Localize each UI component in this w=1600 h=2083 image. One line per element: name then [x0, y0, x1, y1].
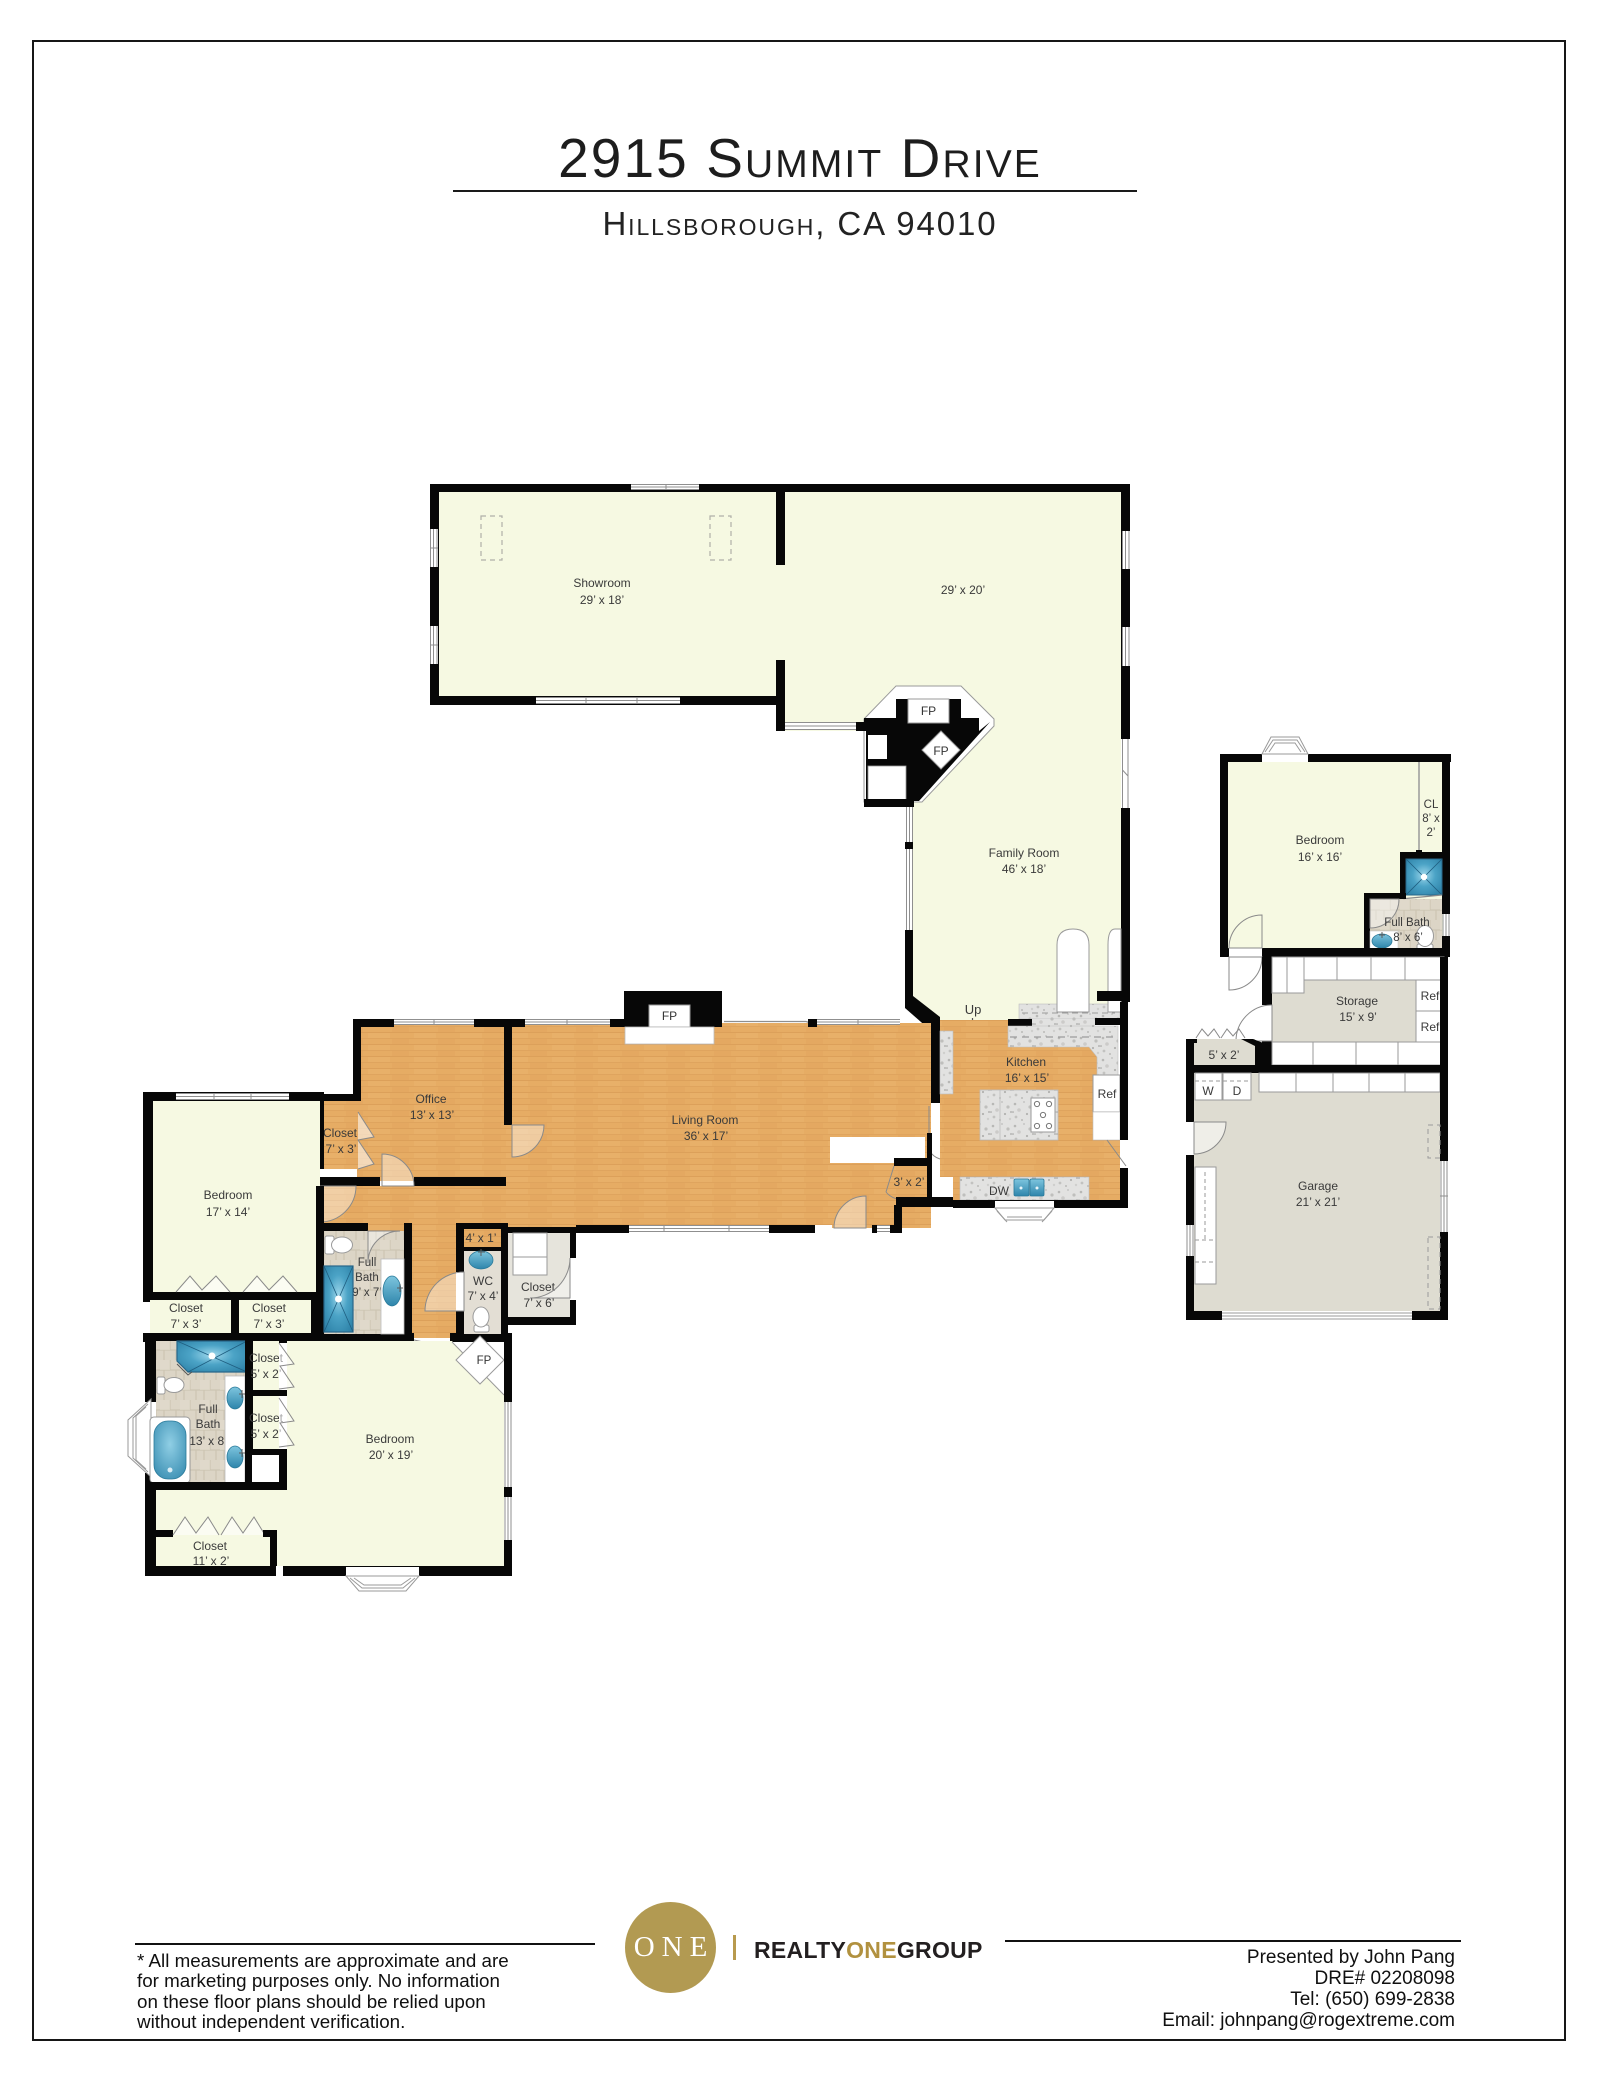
svg-text:DW: DW — [989, 1184, 1010, 1198]
svg-text:CL: CL — [1424, 799, 1439, 811]
svg-text:29’ x 18’: 29’ x 18’ — [580, 593, 624, 607]
svg-text:Full Bath: Full Bath — [1384, 917, 1429, 929]
svg-text:9’ x 7’: 9’ x 7’ — [352, 1287, 382, 1299]
svg-text:FP: FP — [933, 744, 948, 758]
svg-text:5’ x 2’: 5’ x 2’ — [251, 1367, 282, 1381]
svg-text:Bedroom: Bedroom — [366, 1432, 415, 1446]
svg-text:Full: Full — [198, 1402, 217, 1416]
svg-text:Storage: Storage — [1336, 994, 1378, 1008]
svg-text:Ref: Ref — [1421, 989, 1440, 1003]
svg-text:7’ x 3’: 7’ x 3’ — [326, 1142, 357, 1156]
svg-text:16’ x 15’: 16’ x 15’ — [1005, 1071, 1049, 1085]
svg-text:Closet: Closet — [169, 1301, 204, 1315]
svg-text:Family Room: Family Room — [989, 846, 1060, 860]
svg-text:2’: 2’ — [1427, 827, 1436, 839]
svg-text:5’ x 2’: 5’ x 2’ — [1209, 1048, 1240, 1062]
svg-text:Bath: Bath — [355, 1272, 379, 1284]
svg-text:13’ x 8’: 13’ x 8’ — [189, 1434, 227, 1448]
svg-text:15’ x 9’: 15’ x 9’ — [1339, 1010, 1377, 1024]
svg-text:Office: Office — [415, 1092, 446, 1106]
svg-text:Bath: Bath — [196, 1417, 221, 1431]
svg-text:Closet: Closet — [249, 1351, 284, 1365]
svg-text:11’ x 2’: 11’ x 2’ — [193, 1554, 230, 1568]
svg-text:16’ x 16’: 16’ x 16’ — [1298, 850, 1342, 864]
svg-text:4’ x 1’: 4’ x 1’ — [466, 1231, 497, 1245]
svg-text:21’ x 21’: 21’ x 21’ — [1296, 1195, 1340, 1209]
svg-text:Full: Full — [358, 1257, 377, 1269]
svg-text:3’ x 2’: 3’ x 2’ — [894, 1175, 925, 1189]
svg-text:Bedroom: Bedroom — [1296, 833, 1345, 847]
svg-text:46’ x 18’: 46’ x 18’ — [1002, 862, 1046, 876]
svg-text:Ref: Ref — [1421, 1020, 1440, 1034]
svg-text:20’ x 19’: 20’ x 19’ — [369, 1448, 413, 1462]
svg-text:13’ x 13’: 13’ x 13’ — [410, 1108, 454, 1122]
svg-text:7’ x 3’: 7’ x 3’ — [171, 1317, 202, 1331]
svg-text:Showroom: Showroom — [573, 576, 630, 590]
svg-text:WC: WC — [473, 1274, 493, 1288]
svg-text:Kitchen: Kitchen — [1006, 1055, 1046, 1069]
svg-text:8’ x 6’: 8’ x 6’ — [1393, 932, 1423, 944]
svg-text:17’ x 14’: 17’ x 14’ — [206, 1205, 250, 1219]
svg-text:7’ x 3’: 7’ x 3’ — [254, 1317, 285, 1331]
svg-text:8’ x: 8’ x — [1422, 813, 1440, 825]
svg-text:FP: FP — [662, 1009, 677, 1023]
svg-text:7’ x 4’: 7’ x 4’ — [468, 1289, 499, 1303]
svg-text:W: W — [1202, 1084, 1214, 1098]
svg-text:Ref: Ref — [1098, 1087, 1117, 1101]
svg-text:36’ x 17’: 36’ x 17’ — [684, 1129, 728, 1143]
svg-text:FP: FP — [921, 704, 936, 718]
svg-text:Closet: Closet — [252, 1301, 287, 1315]
svg-text:Closet: Closet — [249, 1411, 284, 1425]
svg-text:Living Room: Living Room — [672, 1113, 739, 1127]
svg-text:Closet: Closet — [193, 1539, 228, 1553]
svg-text:FP: FP — [477, 1355, 492, 1367]
svg-text:29’ x 20’: 29’ x 20’ — [941, 583, 985, 597]
svg-text:5’ x 2’: 5’ x 2’ — [251, 1427, 282, 1441]
svg-text:D: D — [1233, 1084, 1242, 1098]
svg-text:Closet: Closet — [323, 1126, 358, 1140]
svg-text:Bedroom: Bedroom — [204, 1188, 253, 1202]
svg-text:Garage: Garage — [1298, 1179, 1338, 1193]
svg-text:Up: Up — [965, 1002, 982, 1017]
